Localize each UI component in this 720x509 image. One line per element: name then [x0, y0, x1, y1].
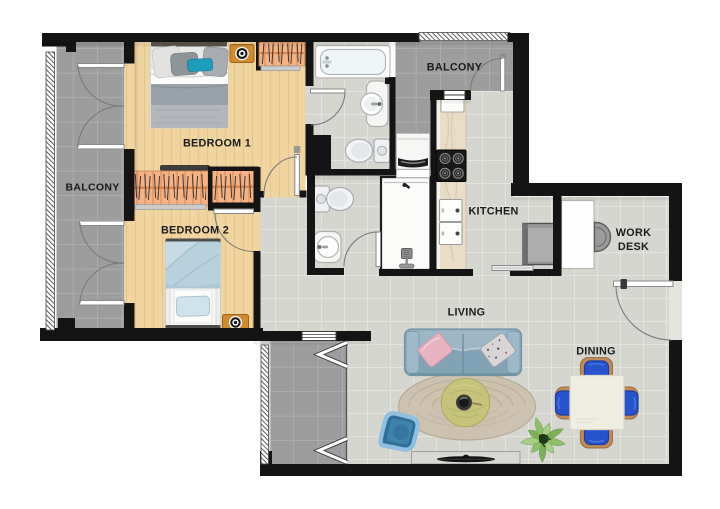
svg-text:DESK: DESK: [618, 241, 649, 253]
svg-text:BEDROOM 1: BEDROOM 1: [183, 138, 251, 150]
svg-text:WORK: WORK: [616, 227, 651, 239]
svg-text:BALCONY: BALCONY: [65, 182, 119, 194]
svg-text:BALCONY: BALCONY: [427, 62, 483, 74]
svg-text:KITCHEN: KITCHEN: [468, 206, 518, 218]
svg-text:DINING: DINING: [576, 346, 616, 358]
svg-text:BEDROOM 2: BEDROOM 2: [161, 225, 229, 237]
svg-text:LIVING: LIVING: [448, 307, 486, 319]
